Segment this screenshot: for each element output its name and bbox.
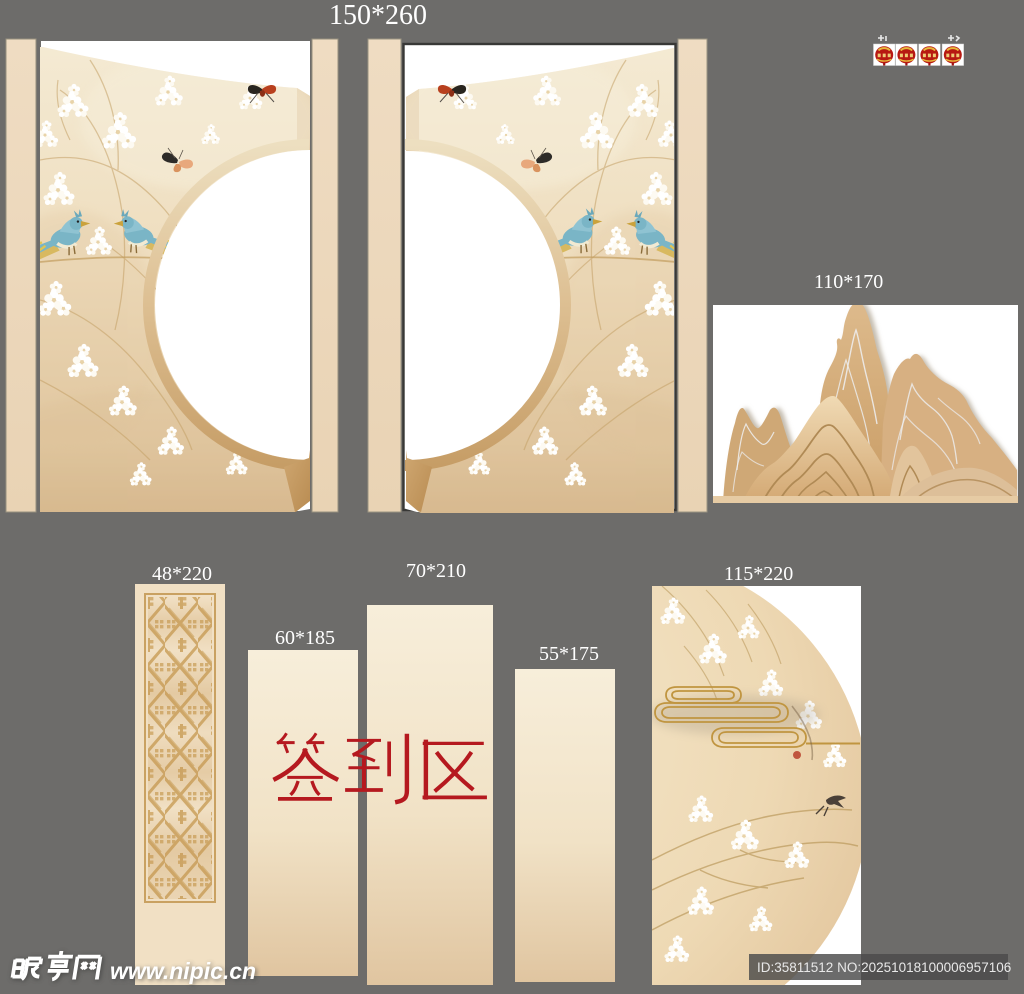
svg-text:60*185: 60*185 — [275, 627, 335, 649]
svg-text:115*220: 115*220 — [724, 563, 793, 585]
svg-text:150*260: 150*260 — [329, 0, 427, 31]
svg-text:www.nipic.cn: www.nipic.cn — [110, 958, 256, 984]
svg-text:70*210: 70*210 — [406, 560, 466, 582]
svg-text:48*220: 48*220 — [152, 563, 212, 585]
svg-text:ID:35811512 NO:202510181000069: ID:35811512 NO:20251018100006957106 — [757, 960, 1011, 975]
svg-text:55*175: 55*175 — [539, 643, 599, 665]
svg-text:110*170: 110*170 — [814, 271, 883, 293]
